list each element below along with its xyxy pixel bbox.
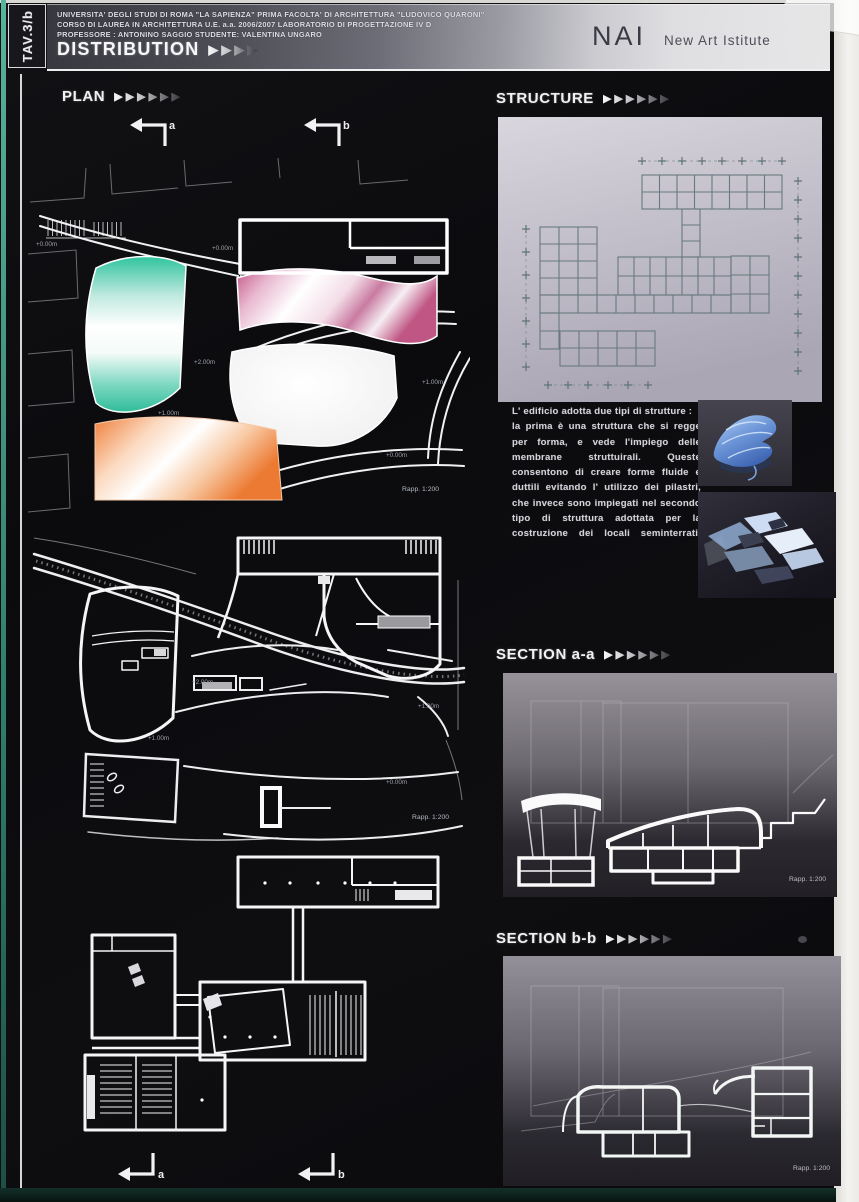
elevation-label: +1.00m: [148, 735, 169, 742]
elevation-label: +2.00m: [192, 679, 213, 686]
plan-zone-teal: [86, 257, 186, 413]
section-aa-title: SECTION a-a ▶▶▶▶▶▶: [496, 646, 673, 663]
arrow-sequence-icon: ▶▶▶▶▶▶: [603, 92, 672, 105]
membrane-roof-render-image: [698, 492, 836, 598]
membrane-render-image: [698, 400, 792, 486]
title-block: UNIVERSITA' DEGLI STUDI DI ROMA "LA SAPI…: [47, 4, 830, 71]
university-info: UNIVERSITA' DEGLI STUDI DI ROMA "LA SAPI…: [57, 10, 577, 40]
tav-label: TAV.3/b: [20, 10, 35, 62]
central-plan-lines: [176, 645, 452, 736]
plan-level1-drawing: +0.00m +0.00m +2.00m +1.00m +1.00m +0.00…: [26, 156, 470, 516]
photo-smudge: [798, 936, 807, 943]
board-bottom-edge: [0, 1188, 836, 1202]
cut-letter: a: [169, 120, 176, 132]
board-title-text: DISTRIBUTION: [57, 39, 199, 60]
arrow-left-icon: [130, 118, 142, 132]
plan-level2-drawing: +2.00m +1.00m +1.00m +0.00m Rapp. 1:200: [26, 520, 472, 850]
tav-number-cell: TAV.3/b: [8, 4, 46, 68]
section-bb-drawing: Rapp. 1:200: [503, 956, 841, 1186]
scale-label: Rapp. 1:200: [412, 814, 449, 821]
logo-subtitle: New Art Istitute: [664, 33, 771, 48]
arrow-left-icon: [298, 1167, 310, 1181]
elevation-label: +2.00m: [194, 359, 215, 366]
photo-of-presentation-board: { "board": { "tav_label": "TAV.3/b", "he…: [0, 0, 859, 1202]
section-cut-marker-b-bottom: b: [296, 1146, 352, 1186]
section-bb-title: SECTION b-b ▶▶▶▶▶▶: [496, 930, 675, 947]
plan-zone-orange: [95, 417, 282, 500]
arrow-sequence-icon: ▶▶▶▶▶▶: [604, 648, 673, 661]
section-bb-title-text: SECTION b-b: [496, 930, 597, 947]
arrow-sequence-icon: ▶▶▶▶▶▶: [114, 90, 183, 103]
section-cut-marker-a-top: a: [128, 114, 180, 152]
university-line-2: CORSO DI LAUREA IN ARCHITETTURA U.E. a.a…: [57, 20, 577, 30]
arrow-left-icon: [118, 1167, 130, 1181]
structure-title-text: STRUCTURE: [496, 90, 594, 107]
section-cut-marker-a-bottom: a: [116, 1146, 172, 1186]
elevation-label: +1.00m: [422, 379, 443, 386]
elevation-label: +0.00m: [36, 241, 57, 248]
university-line-1: UNIVERSITA' DEGLI STUDI DI ROMA "LA SAPI…: [57, 10, 577, 20]
plan-zone-pink: [237, 269, 437, 344]
section-aa-title-text: SECTION a-a: [496, 646, 595, 663]
structure-description: L' edificio adotta due tipi di strutture…: [512, 404, 701, 542]
section-aa-drawing: Rapp. 1:200: [503, 673, 837, 897]
cut-letter: b: [338, 1169, 345, 1181]
lower-left-block: [84, 754, 178, 822]
plan-title-text: PLAN: [62, 88, 105, 105]
plan-section-title: PLAN ▶▶▶▶▶▶: [62, 88, 183, 105]
board-top-edge: [0, 0, 836, 3]
board-left-edge: [1, 0, 6, 1202]
structure-section-title: STRUCTURE ▶▶▶▶▶▶: [496, 90, 672, 107]
scale-label: Rapp. 1:200: [402, 486, 439, 493]
elevation-label: +0.00m: [386, 452, 407, 459]
arrow-sequence-icon: ▶▶▶▶: [208, 42, 260, 58]
scale-label: Rapp. 1:200: [789, 876, 826, 883]
elevation-label: +1.00m: [158, 410, 179, 417]
cut-letter: b: [343, 120, 350, 132]
logo-acronym: NAI: [592, 21, 646, 52]
elevation-label: +0.00m: [386, 779, 407, 786]
board-title: DISTRIBUTION ▶▶▶▶: [57, 39, 260, 60]
scale-label: Rapp. 1:200: [793, 1165, 830, 1172]
left-frame-line: [20, 74, 22, 1188]
section-cut-marker-b-top: b: [302, 114, 354, 152]
arrow-left-icon: [304, 118, 316, 132]
plan-basement-drawing: [58, 843, 462, 1155]
arrow-sequence-icon: ▶▶▶▶▶▶: [606, 932, 675, 945]
structure-paragraph-1: L' edificio adotta due tipi di strutture…: [512, 404, 701, 419]
context-building-outline: [240, 220, 447, 273]
elevation-label: +1.00m: [418, 703, 439, 710]
structure-paragraph-2: la prima è una struttura che si regge pe…: [512, 419, 701, 541]
elevation-label: +0.00m: [212, 245, 233, 252]
project-logo: NAI New Art Istitute: [592, 21, 771, 52]
structure-grid-panel: [498, 117, 822, 402]
cut-letter: a: [158, 1169, 165, 1181]
